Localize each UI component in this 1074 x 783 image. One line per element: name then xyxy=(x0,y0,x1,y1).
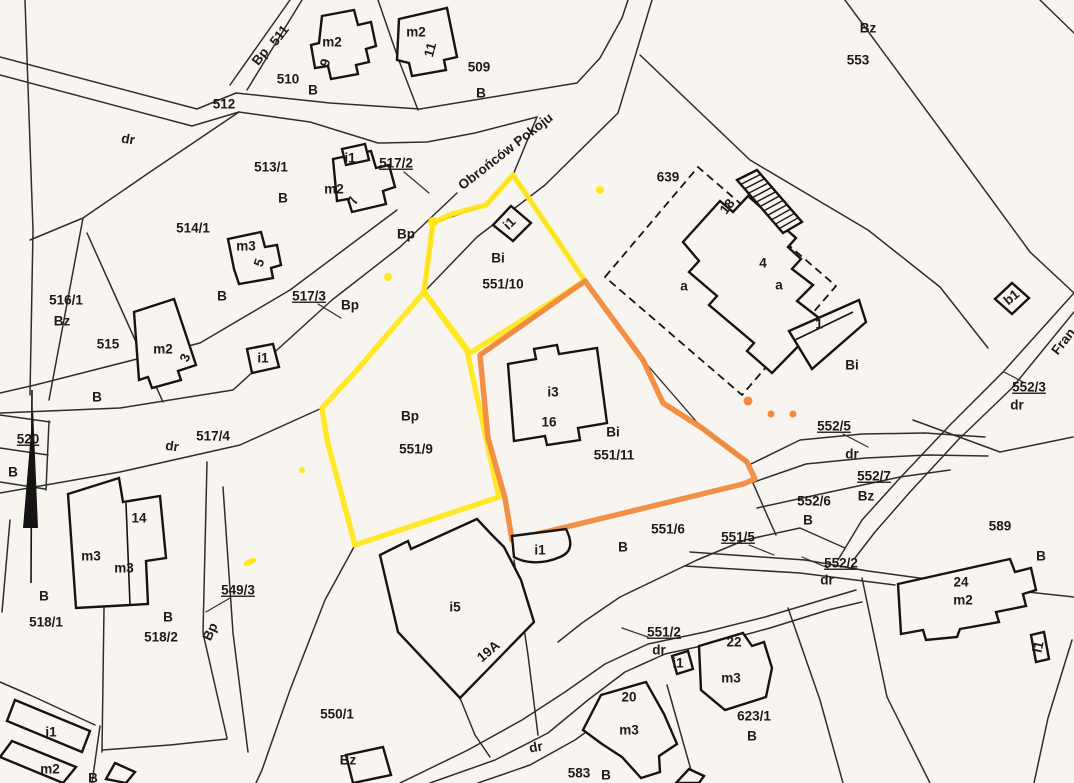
map-label: 518/2 xyxy=(144,630,178,645)
orange-dot xyxy=(744,397,753,406)
map-label: 514/1 xyxy=(176,221,210,236)
map-label: m2 xyxy=(953,593,973,608)
map-label: B xyxy=(8,465,18,480)
map-label: m2 xyxy=(40,762,60,777)
map-label: 22 xyxy=(726,635,741,650)
map-label: 516/1 xyxy=(49,293,83,308)
map-label: 510 xyxy=(277,72,300,87)
map-label: Bp xyxy=(341,298,359,313)
map-label: m3 xyxy=(81,549,101,564)
map-label: 639 xyxy=(657,170,680,185)
map-label: B xyxy=(618,540,628,555)
map-label: 551/5 xyxy=(721,530,755,545)
map-label: m3 xyxy=(114,561,134,576)
map-label: m2 xyxy=(406,25,426,40)
map-label: m2 xyxy=(153,342,173,357)
map-label: i1 xyxy=(672,656,684,671)
map-label: 551/9 xyxy=(399,442,433,457)
map-label: 4 xyxy=(759,256,767,271)
map-label: i1 xyxy=(534,543,546,558)
map-label: 512 xyxy=(213,97,236,112)
map-label: B xyxy=(39,589,49,604)
map-label: B xyxy=(217,289,227,304)
cadastral-map: Bp511m29m211509B510B512dr513/1Bi1m27517/… xyxy=(0,0,1074,783)
map-label: 583 xyxy=(568,766,591,781)
orange-dot xyxy=(768,411,775,418)
map-label: B xyxy=(1036,549,1046,564)
map-label: 520 xyxy=(17,432,40,447)
map-label: a xyxy=(775,278,783,293)
yellow-dot xyxy=(384,273,392,281)
map-label: B xyxy=(601,768,611,783)
map-label: dr xyxy=(652,643,666,658)
map-label: dr xyxy=(1010,398,1024,413)
map-label: 589 xyxy=(989,519,1012,534)
map-label: m3 xyxy=(619,723,639,738)
map-label: B xyxy=(92,390,102,405)
map-label: 517/2 xyxy=(379,156,413,171)
map-label: m3 xyxy=(721,671,741,686)
map-label: i1 xyxy=(45,725,57,740)
map-label: 551/2 xyxy=(647,625,681,640)
map-label: a xyxy=(680,279,688,294)
map-label: Bz xyxy=(860,21,877,36)
map-label: i1 xyxy=(257,351,269,366)
map-label: B xyxy=(747,729,757,744)
map-label: dr xyxy=(820,573,834,588)
yellow-dot xyxy=(299,467,305,473)
map-label: B xyxy=(88,771,98,783)
map-label: Bi xyxy=(606,425,620,440)
cadastral-map-svg: Bp511m29m211509B510B512dr513/1Bi1m27517/… xyxy=(0,0,1074,783)
map-label: Bp xyxy=(401,409,419,424)
map-label: 552/2 xyxy=(824,556,858,571)
map-label: B xyxy=(476,86,486,101)
map-label: m3 xyxy=(236,239,256,254)
map-label: 552/5 xyxy=(817,419,851,434)
map-label: i5 xyxy=(449,600,461,615)
map-label: 24 xyxy=(953,575,969,590)
map-label: 513/1 xyxy=(254,160,288,175)
map-label: 517/4 xyxy=(196,429,230,444)
map-label: B xyxy=(163,610,173,625)
map-label: dr xyxy=(845,447,859,462)
map-label: 515 xyxy=(97,337,120,352)
map-label: Bi xyxy=(845,358,859,373)
yellow-dot xyxy=(596,186,604,194)
map-label: 518/1 xyxy=(29,615,63,630)
map-label: 549/3 xyxy=(221,583,255,598)
map-label: Bp xyxy=(397,227,415,242)
yellow-dot xyxy=(428,217,438,227)
map-label: 552/3 xyxy=(1012,380,1046,395)
map-label: Bz xyxy=(340,753,357,768)
map-label: i3 xyxy=(547,385,559,400)
map-label: 623/1 xyxy=(737,709,771,724)
map-label: Bz xyxy=(54,314,71,329)
map-label: 552/6 xyxy=(797,494,831,509)
map-label: B xyxy=(278,191,288,206)
map-label: B xyxy=(308,83,318,98)
map-label: 552/7 xyxy=(857,469,891,484)
map-label: 16 xyxy=(541,415,557,430)
orange-dot xyxy=(790,411,797,418)
map-label: 553 xyxy=(847,53,870,68)
map-label: 517/3 xyxy=(292,289,326,304)
map-label: m2 xyxy=(324,182,344,197)
map-label: m2 xyxy=(322,35,342,50)
map-label: 20 xyxy=(621,690,636,705)
map-label: 1 xyxy=(815,317,823,332)
map-label: 509 xyxy=(468,60,491,75)
map-label: Bz xyxy=(858,489,875,504)
map-label: 14 xyxy=(131,511,147,526)
map-label: 551/11 xyxy=(594,448,635,463)
map-label: 550/1 xyxy=(320,707,354,722)
map-label: 551/6 xyxy=(651,522,685,537)
map-label: B xyxy=(803,513,813,528)
map-label: Bi xyxy=(491,251,505,266)
map-label: 551/10 xyxy=(482,277,523,292)
map-label: i1 xyxy=(344,151,356,166)
